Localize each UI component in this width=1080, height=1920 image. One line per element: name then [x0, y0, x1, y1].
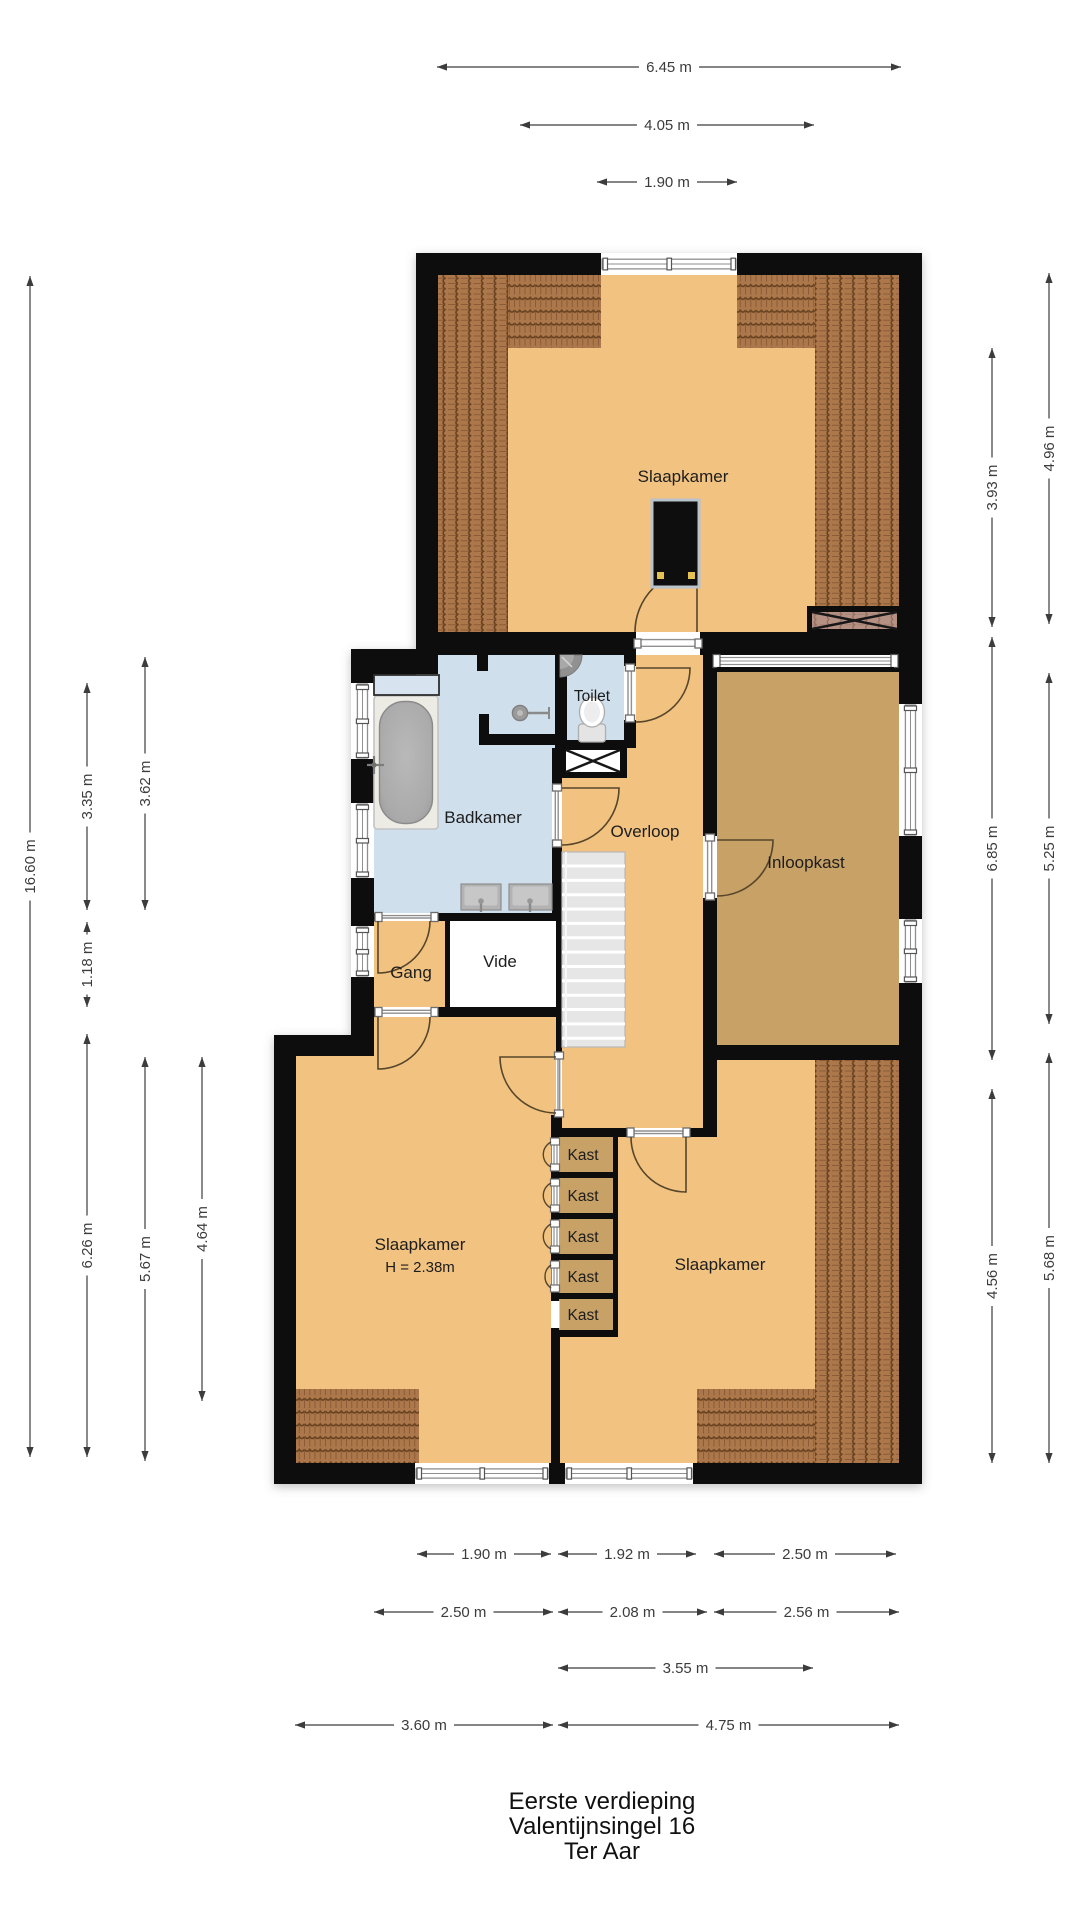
svg-text:3.93 m: 3.93 m [984, 465, 1001, 511]
svg-text:1.92 m: 1.92 m [604, 1546, 650, 1563]
svg-text:2.08 m: 2.08 m [610, 1604, 656, 1621]
svg-text:Gang: Gang [390, 963, 432, 982]
svg-text:Kast: Kast [567, 1307, 599, 1324]
svg-text:2.50 m: 2.50 m [441, 1604, 487, 1621]
svg-text:Badkamer: Badkamer [444, 808, 522, 827]
svg-text:Kast: Kast [567, 1147, 599, 1164]
svg-text:3.35 m: 3.35 m [79, 774, 96, 820]
svg-text:Toilet: Toilet [574, 688, 611, 705]
svg-text:3.60 m: 3.60 m [401, 1717, 447, 1734]
svg-text:4.75 m: 4.75 m [706, 1717, 752, 1734]
svg-text:Overloop: Overloop [611, 822, 680, 841]
svg-text:6.85 m: 6.85 m [984, 826, 1001, 872]
svg-text:6.45 m: 6.45 m [646, 59, 692, 76]
svg-text:Valentijnsingel 16: Valentijnsingel 16 [509, 1813, 695, 1840]
svg-text:5.25 m: 5.25 m [1041, 826, 1058, 872]
svg-text:5.68 m: 5.68 m [1041, 1235, 1058, 1281]
svg-text:1.18 m: 1.18 m [79, 942, 96, 988]
svg-text:H = 2.38m: H = 2.38m [385, 1259, 455, 1276]
svg-text:3.62 m: 3.62 m [137, 761, 154, 807]
svg-text:1.90 m: 1.90 m [461, 1546, 507, 1563]
svg-text:1.90 m: 1.90 m [644, 174, 690, 191]
svg-text:Slaapkamer: Slaapkamer [375, 1235, 466, 1254]
svg-text:4.64 m: 4.64 m [194, 1206, 211, 1252]
svg-text:3.55 m: 3.55 m [663, 1660, 709, 1677]
svg-text:6.26 m: 6.26 m [79, 1223, 96, 1269]
svg-text:Inloopkast: Inloopkast [767, 853, 845, 872]
svg-text:5.67 m: 5.67 m [137, 1236, 154, 1282]
svg-text:Kast: Kast [567, 1269, 599, 1286]
svg-text:2.50 m: 2.50 m [782, 1546, 828, 1563]
svg-text:Ter Aar: Ter Aar [564, 1838, 640, 1865]
svg-text:16.60 m: 16.60 m [22, 839, 39, 893]
svg-text:4.96 m: 4.96 m [1041, 426, 1058, 472]
svg-text:2.56 m: 2.56 m [784, 1604, 830, 1621]
svg-text:Vide: Vide [483, 952, 517, 971]
svg-text:Eerste verdieping: Eerste verdieping [509, 1788, 696, 1815]
svg-text:Kast: Kast [567, 1229, 599, 1246]
svg-text:Slaapkamer: Slaapkamer [675, 1255, 766, 1274]
svg-text:Kast: Kast [567, 1188, 599, 1205]
svg-text:4.05 m: 4.05 m [644, 117, 690, 134]
svg-text:4.56 m: 4.56 m [984, 1253, 1001, 1299]
svg-text:Slaapkamer: Slaapkamer [638, 467, 729, 486]
